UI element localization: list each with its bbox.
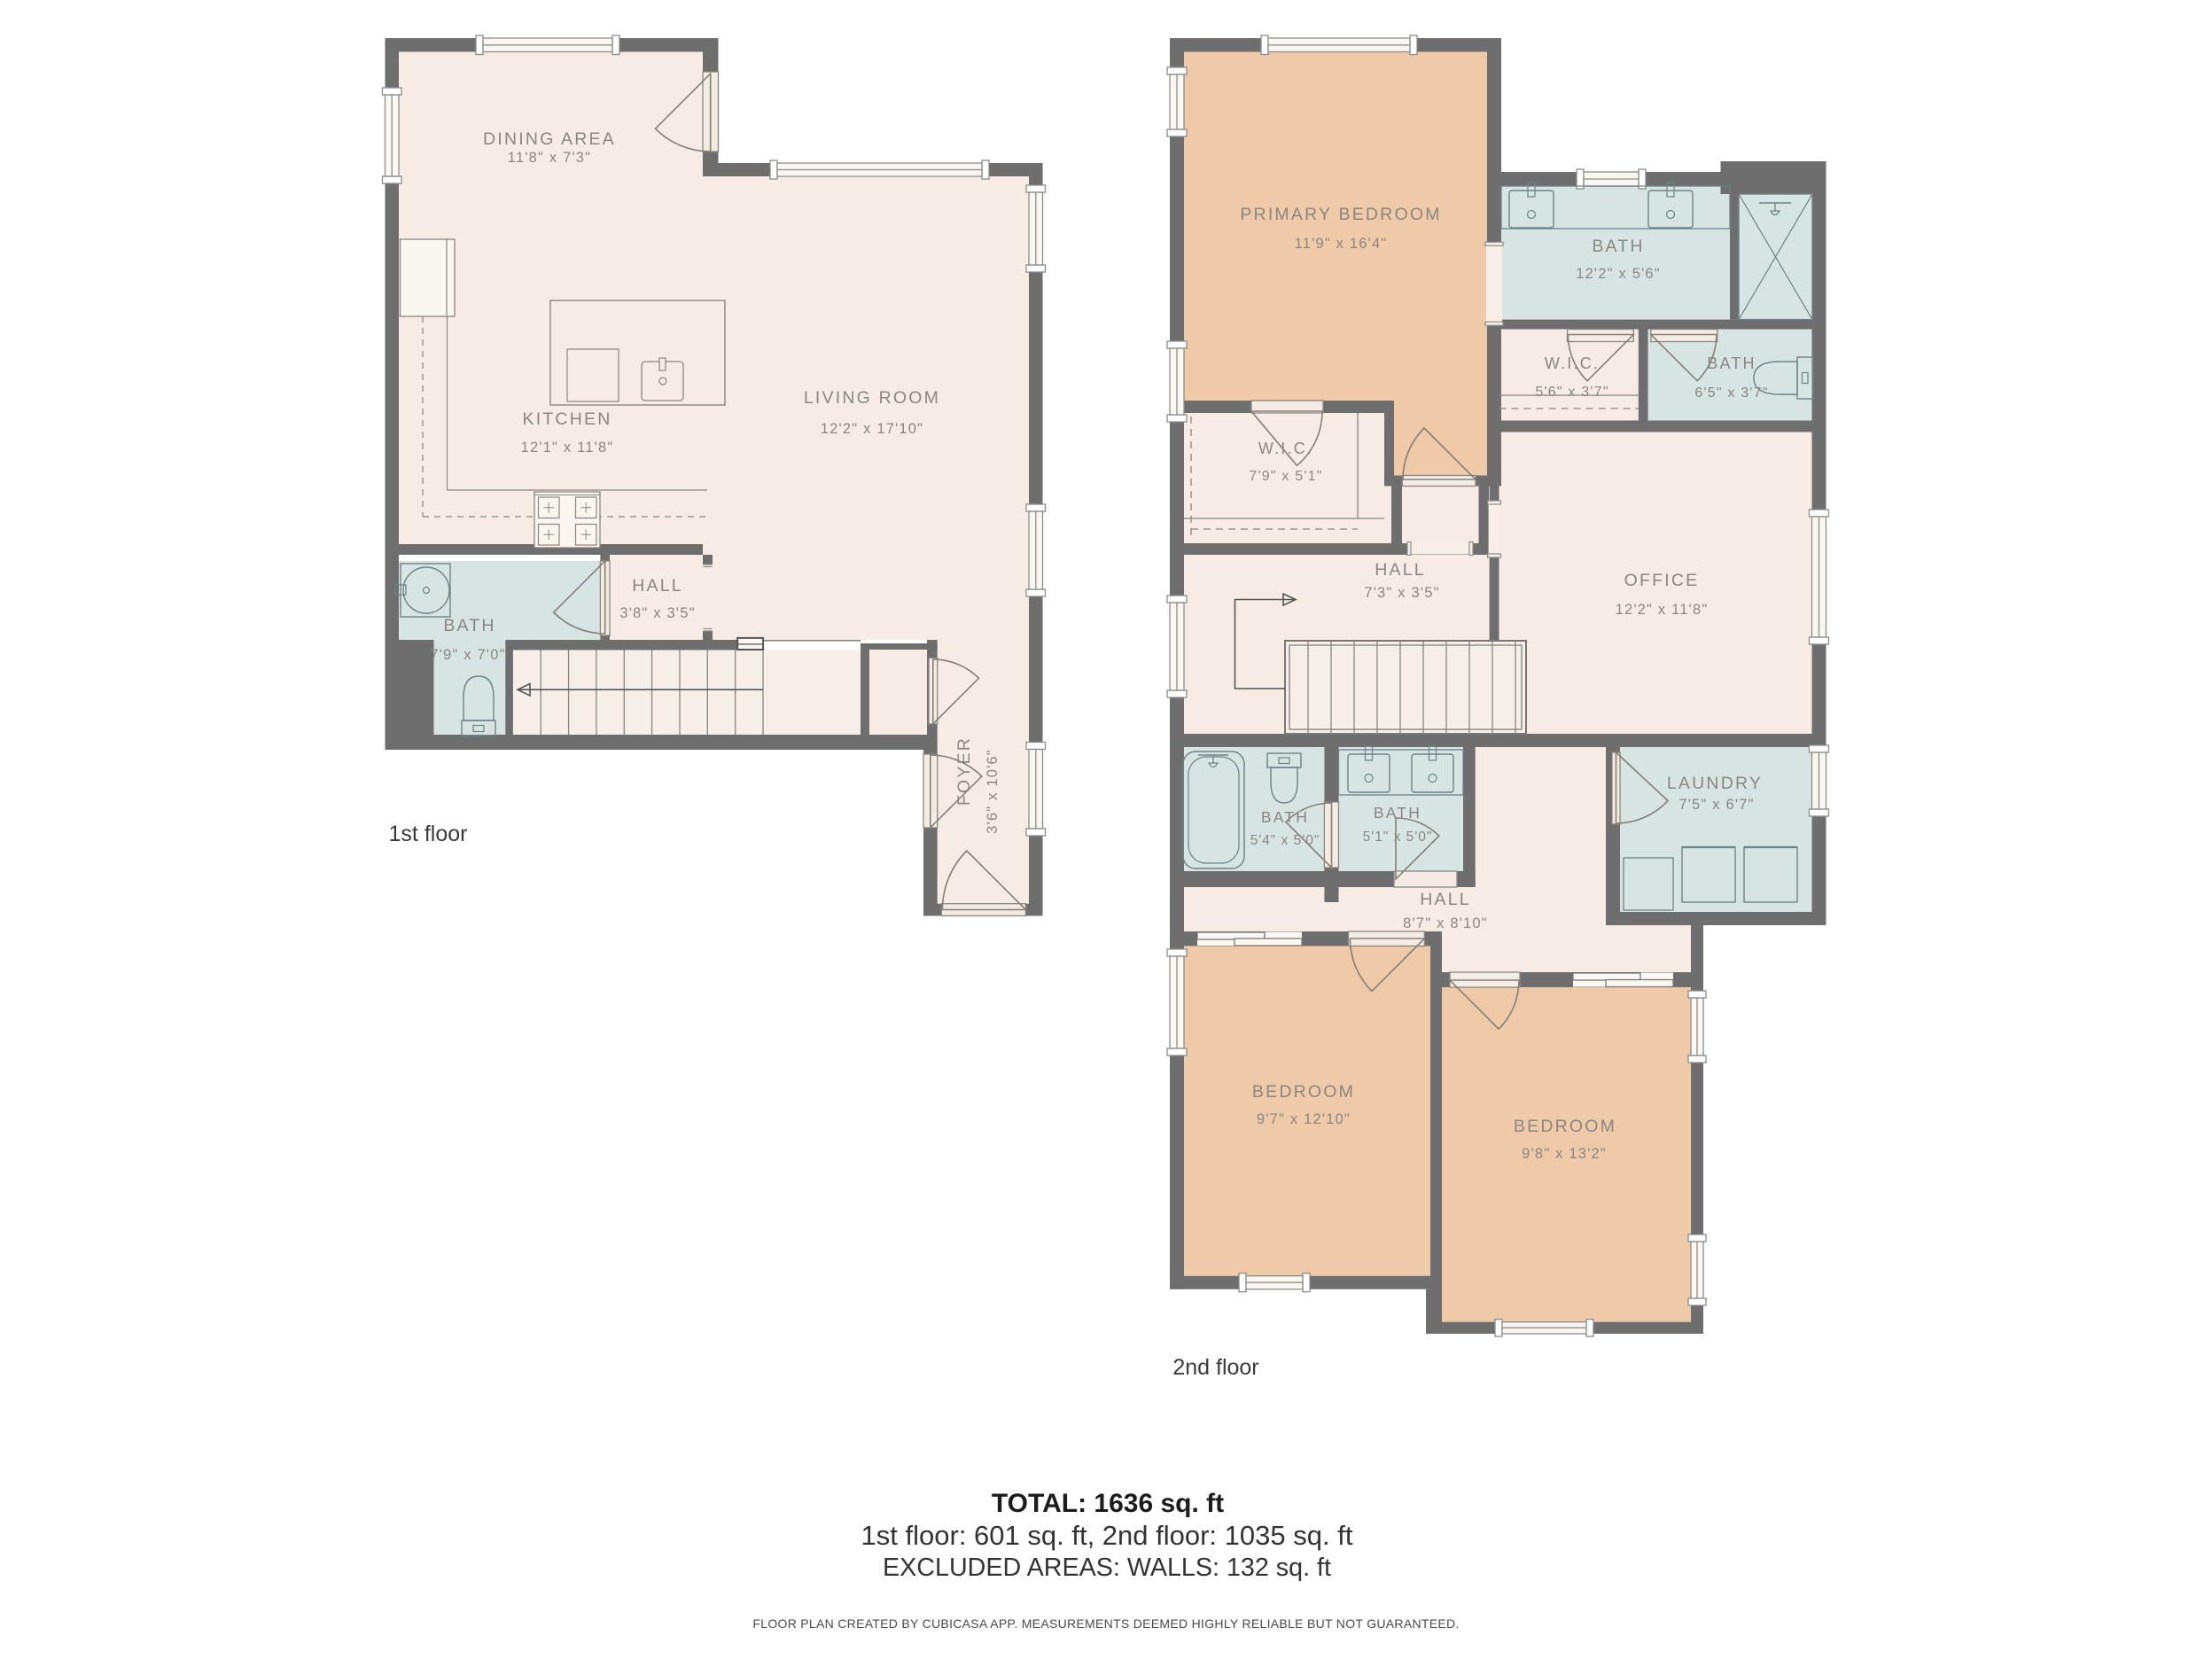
svg-text:BATH: BATH — [1592, 237, 1644, 256]
svg-text:FLOOR PLAN CREATED BY CUBICASA: FLOOR PLAN CREATED BY CUBICASA APP. MEAS… — [752, 1616, 1459, 1631]
svg-text:12'2" x 11'8": 12'2" x 11'8" — [1616, 602, 1709, 618]
svg-text:PRIMARY BEDROOM: PRIMARY BEDROOM — [1240, 205, 1441, 224]
svg-text:12'2" x 5'6": 12'2" x 5'6" — [1576, 266, 1661, 282]
svg-text:BATH: BATH — [1707, 354, 1756, 372]
svg-text:12'1" x 11'8": 12'1" x 11'8" — [521, 440, 614, 456]
svg-text:BEDROOM: BEDROOM — [1514, 1117, 1616, 1136]
svg-text:LIVING ROOM: LIVING ROOM — [804, 388, 940, 408]
svg-text:HALL: HALL — [1375, 560, 1426, 580]
svg-text:EXCLUDED AREAS: WALLS: 132 sq.: EXCLUDED AREAS: WALLS: 132 sq. ft — [883, 1554, 1331, 1582]
svg-text:7'3" x 3'5": 7'3" x 3'5" — [1364, 585, 1439, 601]
svg-text:5'6" x 3'7": 5'6" x 3'7" — [1535, 385, 1608, 400]
svg-text:W.I.C.: W.I.C. — [1258, 440, 1313, 457]
svg-text:2nd floor: 2nd floor — [1172, 1355, 1258, 1380]
svg-text:DINING AREA: DINING AREA — [483, 129, 616, 149]
svg-text:BATH: BATH — [1374, 804, 1421, 822]
svg-text:1st floor: 1st floor — [389, 822, 468, 846]
svg-text:LAUNDRY: LAUNDRY — [1667, 774, 1763, 793]
svg-text:BEDROOM: BEDROOM — [1252, 1082, 1355, 1102]
svg-text:9'8" x 13'2": 9'8" x 13'2" — [1522, 1146, 1607, 1162]
svg-text:W.I.C.: W.I.C. — [1545, 354, 1600, 372]
svg-text:KITCHEN: KITCHEN — [523, 409, 612, 429]
svg-text:OFFICE: OFFICE — [1624, 571, 1700, 590]
svg-text:5'1" x 5'0": 5'1" x 5'0" — [1363, 829, 1433, 845]
svg-text:12'2" x 17'10": 12'2" x 17'10" — [821, 421, 923, 437]
svg-text:5'4" x 5'0": 5'4" x 5'0" — [1250, 833, 1320, 848]
svg-text:HALL: HALL — [632, 576, 683, 596]
svg-text:HALL: HALL — [1420, 890, 1471, 909]
svg-text:3'6" x 10'6": 3'6" x 10'6" — [985, 749, 1001, 834]
svg-text:11'8" x 7'3": 11'8" x 7'3" — [508, 150, 592, 166]
svg-text:1st floor: 601 sq. ft, 2nd flo: 1st floor: 601 sq. ft, 2nd floor: 1035 s… — [861, 1520, 1353, 1551]
svg-text:9'7" x 12'10": 9'7" x 12'10" — [1257, 1111, 1351, 1127]
svg-text:BATH: BATH — [443, 616, 495, 635]
svg-text:BATH: BATH — [1261, 808, 1309, 826]
svg-text:11'9" x 16'4": 11'9" x 16'4" — [1295, 236, 1388, 252]
svg-text:FOYER: FOYER — [954, 736, 974, 806]
svg-text:8'7" x 8'10": 8'7" x 8'10" — [1403, 915, 1488, 931]
svg-text:TOTAL: 1636 sq. ft: TOTAL: 1636 sq. ft — [992, 1489, 1224, 1518]
svg-text:6'5" x 3'7": 6'5" x 3'7" — [1694, 386, 1768, 401]
svg-text:7'9" x 7'0": 7'9" x 7'0" — [430, 647, 505, 663]
svg-text:7'5" x 6'7": 7'5" x 6'7" — [1678, 797, 1754, 813]
svg-text:7'9" x 5'1": 7'9" x 5'1" — [1249, 469, 1322, 484]
svg-text:3'8" x 3'5": 3'8" x 3'5" — [619, 605, 695, 621]
